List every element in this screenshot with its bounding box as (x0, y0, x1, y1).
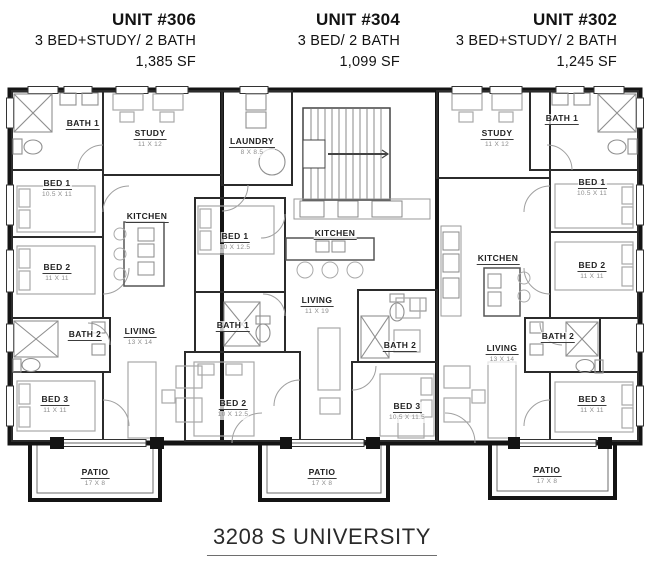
room-name: PATIO (81, 468, 110, 479)
room-name: BED 2 (218, 399, 247, 410)
room-dims: 11 X 11 (40, 407, 69, 416)
room-label-306-kitchen: KITCHEN (126, 206, 169, 224)
room-dims: 11 X 11 (577, 273, 606, 282)
room-label-302-study: STUDY 11 X 12 (481, 123, 514, 150)
room-label-304-bath-1: BATH 1 (216, 315, 250, 333)
room-dims: 10.5 X 11 (42, 191, 72, 200)
room-dims: 11 X 12 (481, 141, 514, 150)
room-label-302-living: LIVING 13 X 14 (486, 338, 519, 365)
unit-306-type: 3 BED+STUDY/ 2 BATH (0, 32, 196, 51)
room-name: BED 3 (577, 395, 606, 406)
room-label-306-bath-2: BATH 2 (68, 324, 102, 342)
room-name: BED 2 (42, 263, 71, 274)
room-name: KITCHEN (477, 254, 520, 265)
room-name: BED 1 (42, 179, 71, 190)
room-name: LIVING (301, 296, 334, 307)
room-label-306-bath-1: BATH 1 (66, 113, 100, 131)
room-name: PATIO (533, 466, 562, 477)
room-name: STUDY (481, 129, 514, 140)
room-label-302-kitchen: KITCHEN (477, 248, 520, 266)
unit-304-type: 3 BED/ 2 BATH (260, 32, 400, 51)
room-dims: 13 X 14 (124, 339, 157, 348)
room-label-laundry: LAUNDRY 8 X 8.5 (229, 131, 275, 158)
room-dims: 8 X 8.5 (229, 149, 275, 158)
room-name: BATH 2 (68, 330, 102, 341)
room-name: LAUNDRY (229, 137, 275, 148)
room-name: BATH 1 (545, 114, 579, 125)
room-dims: 17 X 8 (81, 480, 110, 489)
room-dims: 10.5 X 11.5 (389, 414, 425, 423)
unit-304-title: UNIT #304 (260, 9, 400, 31)
room-label-302-patio: PATIO 17 X 8 (533, 460, 562, 487)
room-label-304-bed-3: BED 3 10.5 X 11.5 (389, 396, 425, 423)
unit-302-area: 1,245 SF (427, 53, 617, 72)
room-label-304-bed-1: BED 1 10 X 12.5 (220, 226, 251, 253)
room-label-306-study: STUDY 11 X 12 (134, 123, 167, 150)
room-dims: 17 X 8 (533, 478, 562, 487)
room-label-302-bed-2: BED 2 11 X 11 (577, 255, 606, 282)
room-dims: 11 X 19 (301, 308, 334, 317)
room-name: BED 3 (392, 402, 421, 413)
room-dims: 10 X 12.5 (220, 244, 251, 253)
floor-plan-page: UNIT #306 3 BED+STUDY/ 2 BATH 1,385 SF U… (0, 0, 650, 570)
address-label: 3208 S UNIVERSITY (207, 524, 437, 556)
room-label-304-bath-2: BATH 2 (383, 335, 417, 353)
room-name: BED 1 (577, 178, 606, 189)
unit-306-header: UNIT #306 3 BED+STUDY/ 2 BATH 1,385 SF (0, 9, 196, 72)
room-label-302-bath-1: BATH 1 (545, 108, 579, 126)
room-dims: 17 X 8 (308, 480, 337, 489)
room-dims: 11 X 11 (42, 275, 71, 284)
room-name: BATH 2 (541, 332, 575, 343)
room-label-306-bed-3: BED 3 11 X 11 (40, 389, 69, 416)
room-name: KITCHEN (314, 229, 357, 240)
room-name: LIVING (124, 327, 157, 338)
room-name: STUDY (134, 129, 167, 140)
unit-302-type: 3 BED+STUDY/ 2 BATH (427, 32, 617, 51)
unit-304-area: 1,099 SF (260, 53, 400, 72)
room-dims: 11 X 12 (134, 141, 167, 150)
room-label-304-kitchen: KITCHEN (314, 223, 357, 241)
room-name: KITCHEN (126, 212, 169, 223)
unit-302-title: UNIT #302 (427, 9, 617, 31)
unit-302-header: UNIT #302 3 BED+STUDY/ 2 BATH 1,245 SF (427, 9, 617, 72)
room-name: LIVING (486, 344, 519, 355)
room-name: BED 2 (577, 261, 606, 272)
unit-306-title: UNIT #306 (0, 9, 196, 31)
room-dims: 10 X 12.5 (218, 411, 249, 420)
room-label-304-living: LIVING 11 X 19 (301, 290, 334, 317)
room-name: BATH 1 (66, 119, 100, 130)
room-dims: 10.5 X 11 (577, 190, 607, 199)
room-label-306-living: LIVING 13 X 14 (124, 321, 157, 348)
room-label-304-bed-2: BED 2 10 X 12.5 (218, 393, 249, 420)
room-label-306-bed-1: BED 1 10.5 X 11 (42, 173, 72, 200)
room-name: BED 1 (220, 232, 249, 243)
room-label-302-bath-2: BATH 2 (541, 326, 575, 344)
unit-304-header: UNIT #304 3 BED/ 2 BATH 1,099 SF (260, 9, 400, 72)
room-dims: 11 X 11 (577, 407, 606, 416)
room-label-306-patio: PATIO 17 X 8 (81, 462, 110, 489)
room-dims: 13 X 14 (486, 356, 519, 365)
room-label-304-patio: PATIO 17 X 8 (308, 462, 337, 489)
room-name: BED 3 (40, 395, 69, 406)
room-label-302-bed-1: BED 1 10.5 X 11 (577, 172, 607, 199)
room-name: BATH 2 (383, 341, 417, 352)
room-label-302-bed-3: BED 3 11 X 11 (577, 389, 606, 416)
stairwell (303, 108, 390, 200)
room-label-306-bed-2: BED 2 11 X 11 (42, 257, 71, 284)
room-name: BATH 1 (216, 321, 250, 332)
unit-306-area: 1,385 SF (0, 53, 196, 72)
room-name: PATIO (308, 468, 337, 479)
